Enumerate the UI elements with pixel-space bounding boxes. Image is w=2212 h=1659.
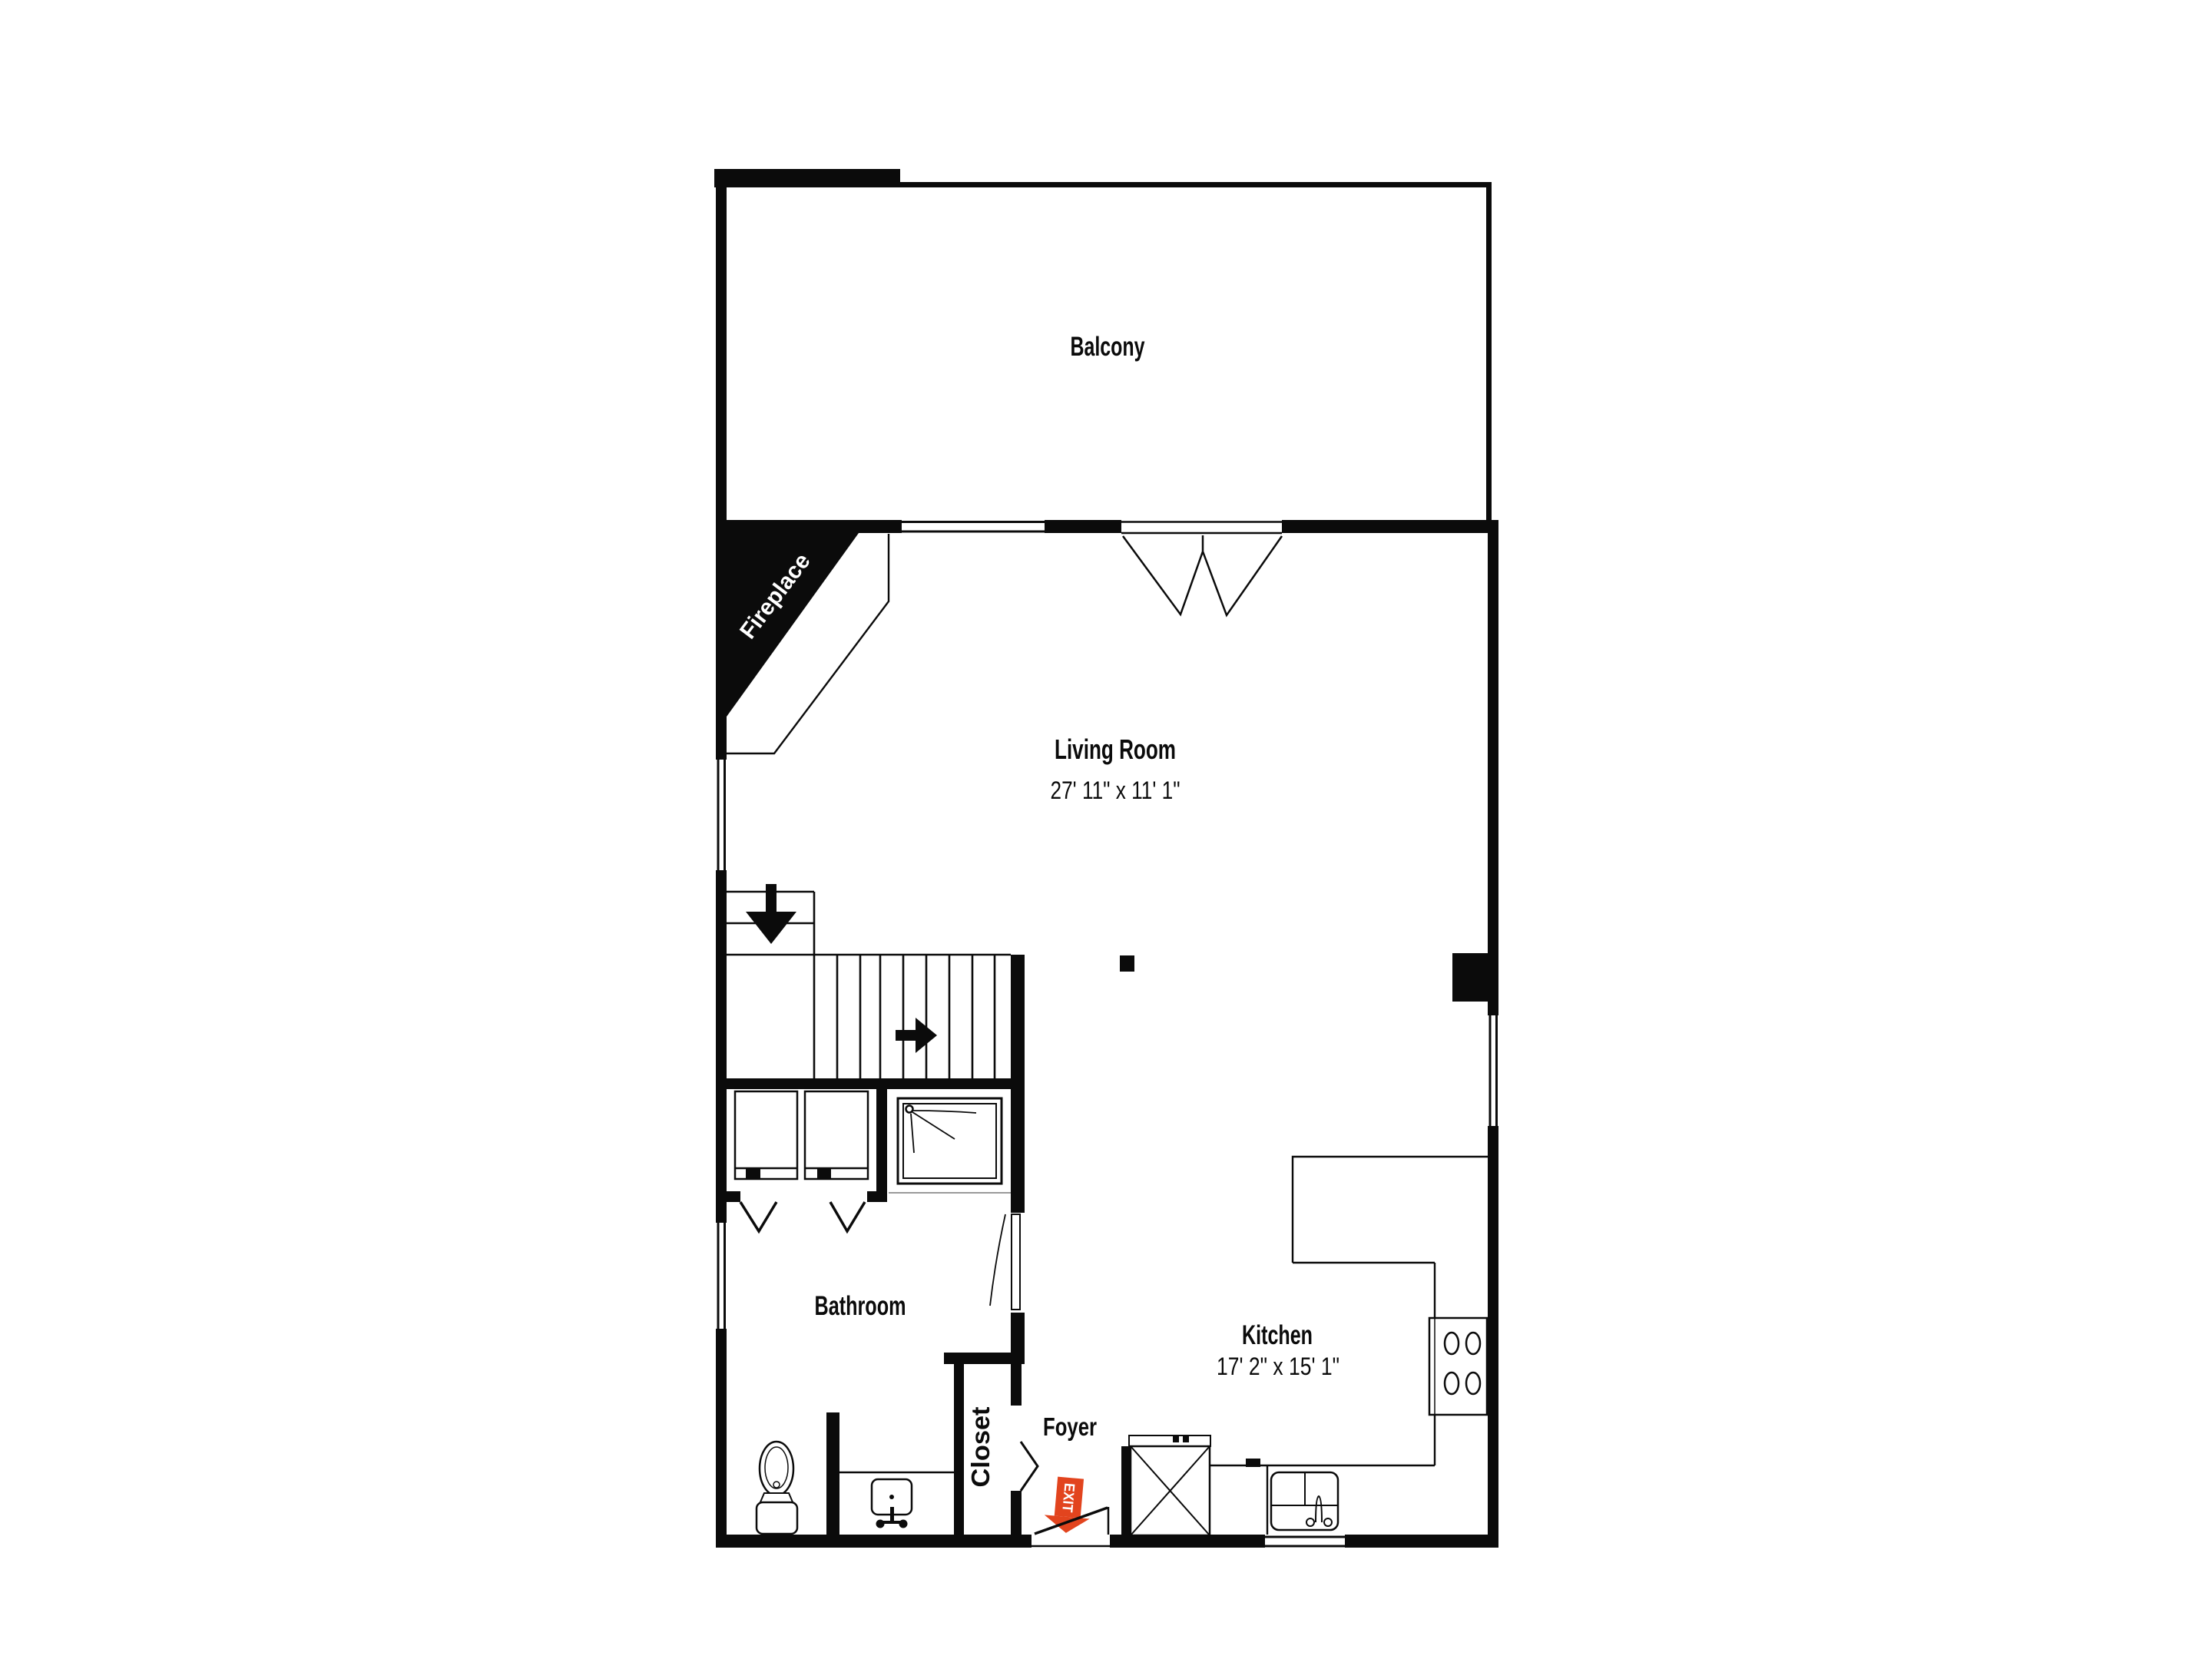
- svg-text:Foyer: Foyer: [1043, 1412, 1097, 1441]
- svg-text:Closet: Closet: [966, 1406, 995, 1487]
- svg-text:Balcony: Balcony: [1071, 332, 1145, 362]
- svg-text:27' 11" x 11' 1": 27' 11" x 11' 1": [1051, 777, 1181, 804]
- svg-text:Living Room: Living Room: [1055, 733, 1176, 765]
- svg-text:EXIT: EXIT: [1058, 1482, 1077, 1513]
- svg-text:17' 2" x 15' 1": 17' 2" x 15' 1": [1217, 1353, 1339, 1380]
- svg-text:Kitchen: Kitchen: [1242, 1320, 1313, 1350]
- svg-text:Bathroom: Bathroom: [815, 1291, 906, 1321]
